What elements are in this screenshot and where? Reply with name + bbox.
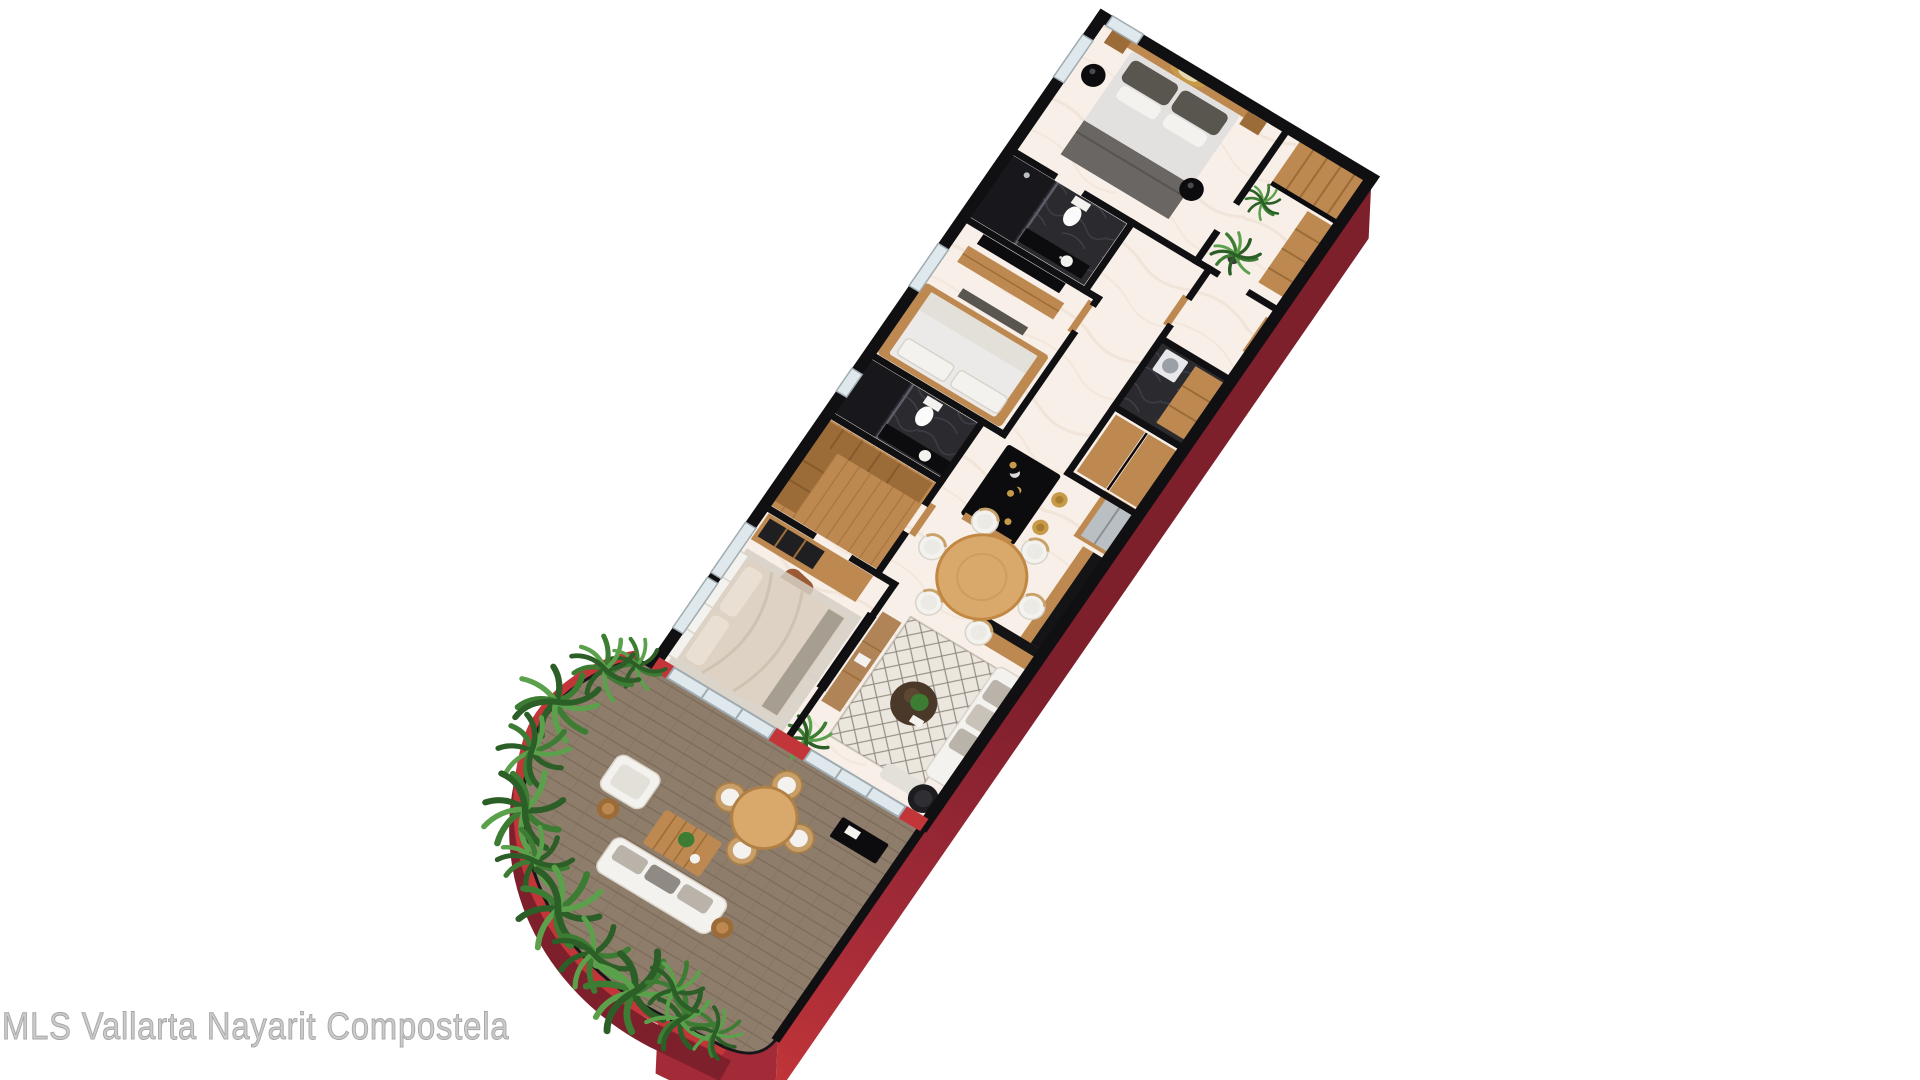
building <box>363 0 1402 1080</box>
watermark: MLS Vallarta Nayarit Compostela <box>2 1006 509 1049</box>
floor-plan-render: MLS Vallarta Nayarit Compostela <box>0 0 1920 1080</box>
floor-plan-svg <box>0 0 1920 1080</box>
